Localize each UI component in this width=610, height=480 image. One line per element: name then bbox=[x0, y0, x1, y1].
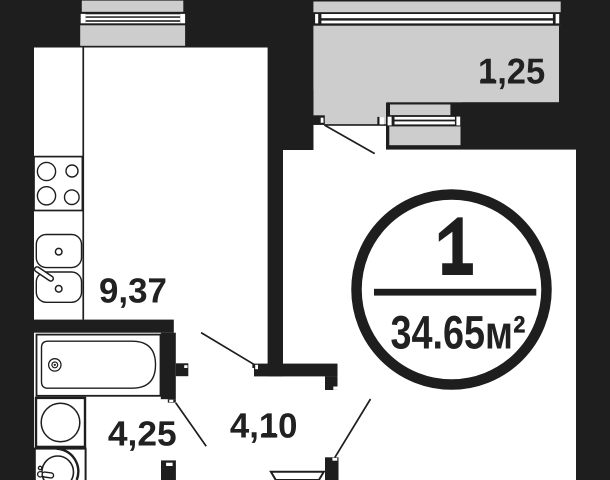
svg-text:9,37: 9,37 bbox=[99, 272, 167, 311]
svg-text:4,25: 4,25 bbox=[108, 414, 177, 453]
svg-text:34.65м²: 34.65м² bbox=[391, 306, 526, 359]
svg-text:1,25: 1,25 bbox=[478, 51, 545, 92]
svg-text:4,10: 4,10 bbox=[230, 407, 298, 446]
